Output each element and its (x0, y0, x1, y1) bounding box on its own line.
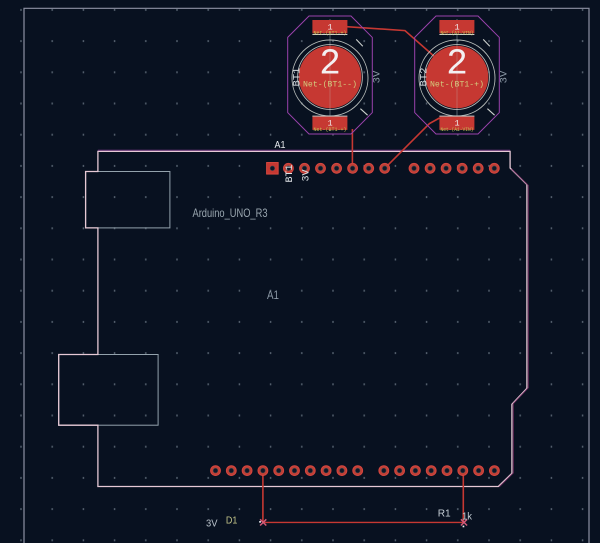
svg-text:A1: A1 (267, 288, 279, 302)
svg-text:Net-(A1-VIN): Net-(A1-VIN) (441, 30, 474, 36)
svg-text:BT1: BT1 (285, 164, 296, 182)
svg-text:BT2: BT2 (418, 68, 430, 87)
svg-text:2: 2 (446, 44, 468, 85)
svg-text:Net-(BT1-+): Net-(BT1-+) (314, 127, 347, 133)
svg-text:3V: 3V (301, 169, 312, 181)
svg-text:A1: A1 (275, 139, 286, 151)
svg-text:Arduino_UNO_R3: Arduino_UNO_R3 (193, 206, 268, 220)
svg-text:Net-(BT1-+): Net-(BT1-+) (314, 30, 347, 36)
svg-text:2: 2 (319, 44, 341, 85)
svg-text:BT1: BT1 (291, 68, 303, 87)
svg-text:3V: 3V (371, 70, 383, 83)
svg-text:Net-(BT1--): Net-(BT1--) (303, 80, 357, 90)
svg-text:D1: D1 (226, 514, 238, 526)
svg-text:R1: R1 (438, 508, 451, 520)
svg-text:Net-(BT1-+): Net-(BT1-+) (430, 80, 484, 90)
svg-text:Net-(A1-VIN): Net-(A1-VIN) (441, 127, 474, 133)
svg-text:3V: 3V (206, 517, 218, 529)
svg-text:3V: 3V (498, 70, 510, 83)
svg-text:1k: 1k (462, 512, 473, 523)
